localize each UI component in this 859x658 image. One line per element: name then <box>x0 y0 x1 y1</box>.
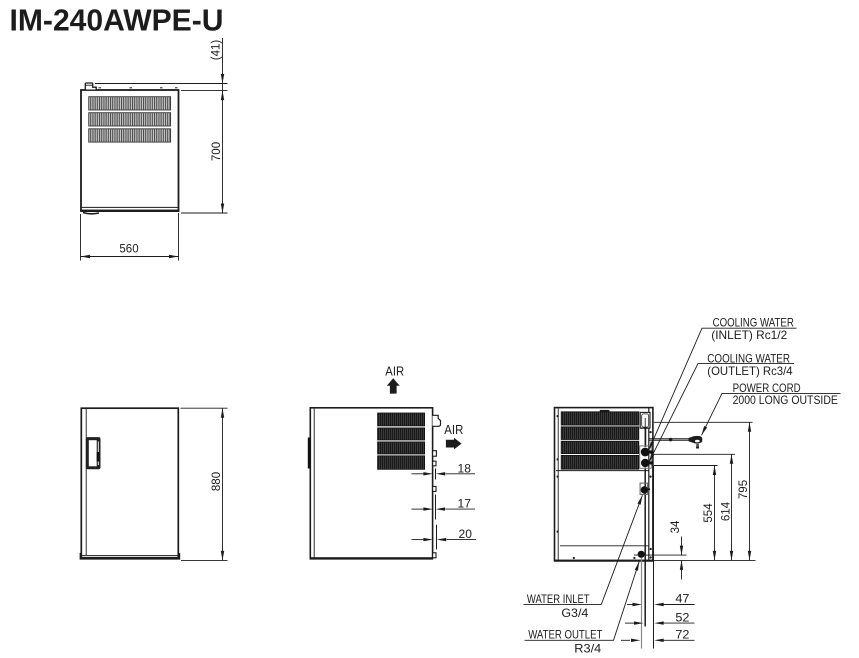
svg-text:20: 20 <box>459 529 472 541</box>
svg-text:880: 880 <box>211 472 223 491</box>
svg-text:R3/4: R3/4 <box>574 642 601 656</box>
svg-text:WATER OUTLET: WATER OUTLET <box>528 628 603 642</box>
svg-text:560: 560 <box>119 244 138 256</box>
svg-text:52: 52 <box>675 612 689 624</box>
svg-text:554: 554 <box>703 503 715 523</box>
svg-text:(INLET) Rc1/2: (INLET) Rc1/2 <box>711 328 787 342</box>
svg-text:614: 614 <box>720 501 732 521</box>
svg-text:G3/4: G3/4 <box>561 606 588 620</box>
svg-text:700: 700 <box>211 142 223 161</box>
svg-text:34: 34 <box>670 520 682 533</box>
svg-text:IM-240AWPE-U: IM-240AWPE-U <box>10 3 224 38</box>
svg-text:2000 LONG OUTSIDE: 2000 LONG OUTSIDE <box>733 393 838 407</box>
svg-text:(OUTLET) Rc3/4: (OUTLET) Rc3/4 <box>707 364 793 378</box>
svg-text:18: 18 <box>458 463 471 475</box>
svg-text:(41): (41) <box>211 40 223 61</box>
svg-text:47: 47 <box>675 594 689 606</box>
svg-text:795: 795 <box>738 480 750 499</box>
svg-text:WATER INLET: WATER INLET <box>527 592 590 606</box>
svg-text:AIR: AIR <box>385 364 404 378</box>
svg-text:AIR: AIR <box>444 423 463 437</box>
svg-text:17: 17 <box>458 499 471 511</box>
svg-text:72: 72 <box>675 630 689 642</box>
